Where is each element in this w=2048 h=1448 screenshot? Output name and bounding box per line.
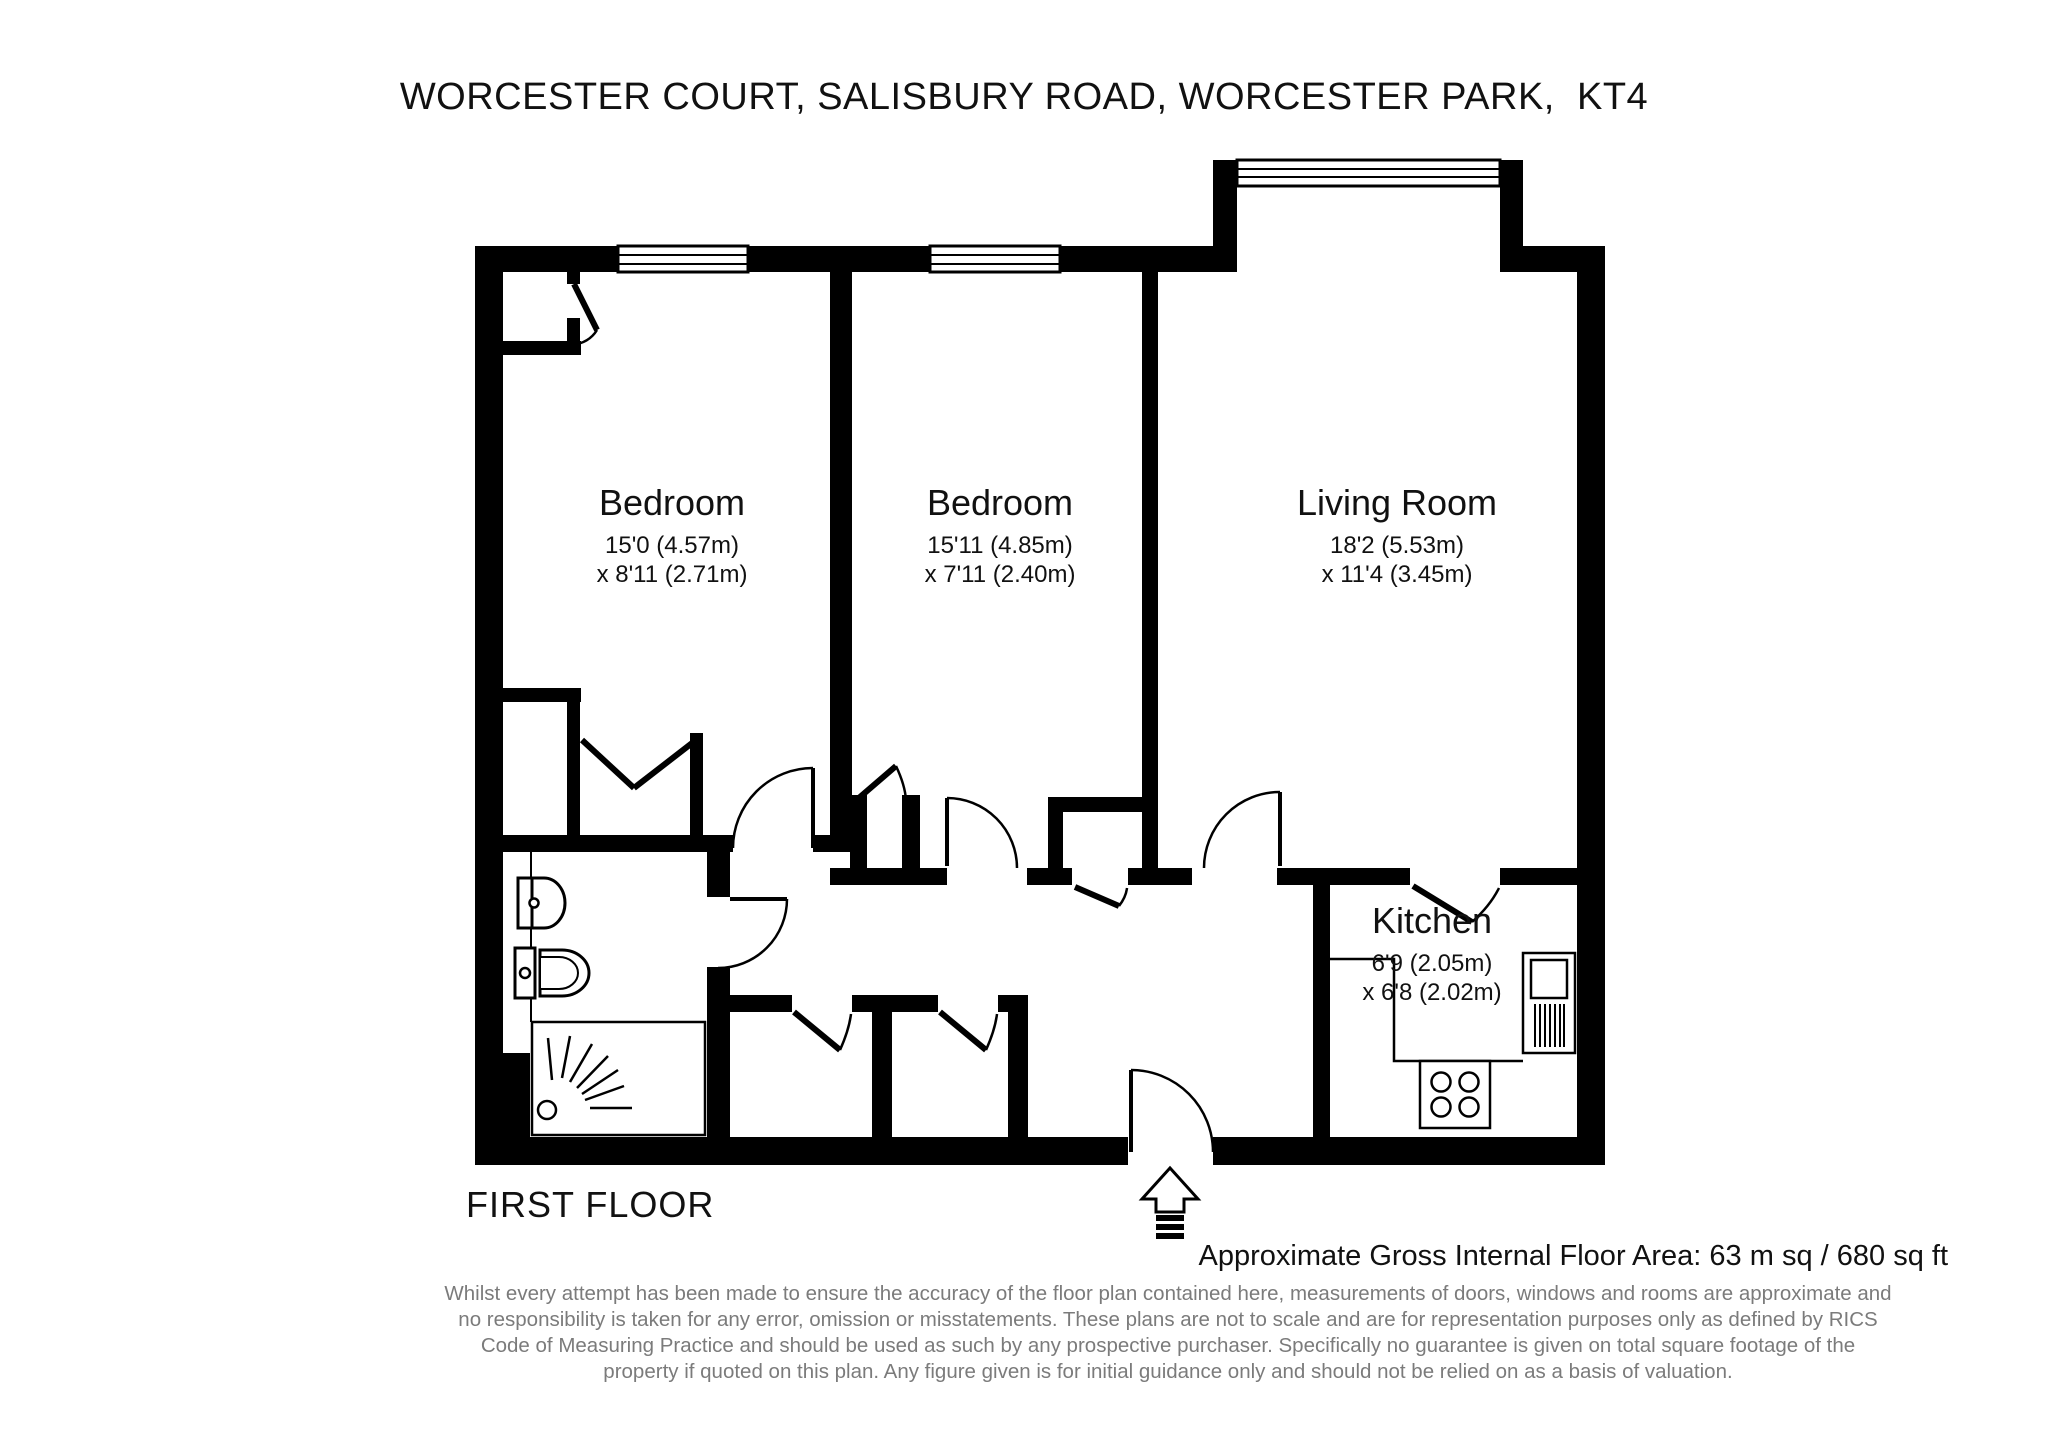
shower-icon	[532, 1022, 705, 1135]
room-label-living-room: Living Room 18'2 (5.53m) x 11'4 (3.45m)	[1297, 482, 1497, 589]
room-dimensions: 15'11 (4.85m)	[925, 531, 1076, 560]
room-dimensions: x 11'4 (3.45m)	[1297, 560, 1497, 589]
floor-plan	[0, 0, 2048, 1448]
bathroom-door	[718, 899, 787, 968]
bedroom1-wardrobe-doors	[582, 740, 696, 788]
room-dimensions: 18'2 (5.53m)	[1297, 531, 1497, 560]
bedroom2-closet-door	[853, 766, 906, 803]
bedroom1-door	[733, 768, 813, 848]
room-name: Kitchen	[1362, 900, 1501, 942]
floor-label: FIRST FLOOR	[466, 1184, 714, 1226]
outer-walls	[475, 160, 1605, 1165]
room-label-bedroom-2: Bedroom 15'11 (4.85m) x 7'11 (2.40m)	[925, 482, 1076, 589]
wash-basin-icon	[518, 878, 565, 928]
entrance-arrow-icon	[1142, 1168, 1198, 1239]
room-label-kitchen: Kitchen 6'9 (2.05m) x 6'8 (2.02m)	[1362, 900, 1501, 1007]
room-name: Bedroom	[597, 482, 748, 524]
page-title: WORCESTER COURT, SALISBURY ROAD, WORCEST…	[400, 76, 1648, 119]
room-name: Living Room	[1297, 482, 1497, 524]
hob-icon	[1420, 1061, 1490, 1128]
fridge-freezer-icon	[1523, 953, 1575, 1053]
room-dimensions: x 8'11 (2.71m)	[597, 560, 748, 589]
room-dimensions: 15'0 (4.57m)	[597, 531, 748, 560]
disclaimer-line: property if quoted on this plan. Any fig…	[444, 1359, 1891, 1385]
disclaimer-line: no responsibility is taken for any error…	[444, 1307, 1891, 1333]
hall-storage-door-right	[940, 1012, 997, 1050]
hall-cupboard-door	[1075, 887, 1127, 906]
entrance-door	[1131, 1070, 1213, 1152]
room-label-bedroom-1: Bedroom 15'0 (4.57m) x 8'11 (2.71m)	[597, 482, 748, 589]
bedroom2-door	[947, 798, 1017, 868]
living-room-window	[1237, 160, 1500, 186]
toilet-icon	[515, 948, 589, 998]
disclaimer: Whilst every attempt has been made to en…	[444, 1281, 1891, 1385]
floor-area-note: Approximate Gross Internal Floor Area: 6…	[1198, 1240, 1948, 1273]
interior-walls	[503, 272, 1582, 1137]
living-room-door	[1204, 792, 1280, 868]
room-dimensions: 6'9 (2.05m)	[1362, 949, 1501, 978]
room-dimensions: x 7'11 (2.40m)	[925, 560, 1076, 589]
disclaimer-line: Code of Measuring Practice and should be…	[444, 1333, 1891, 1359]
bedroom1-window	[618, 246, 748, 272]
bedroom2-window	[930, 246, 1060, 272]
disclaimer-line: Whilst every attempt has been made to en…	[444, 1281, 1891, 1307]
hall-storage-door-left	[794, 1012, 851, 1050]
room-dimensions: x 6'8 (2.02m)	[1362, 978, 1501, 1007]
bathroom-fixtures	[515, 852, 705, 1135]
room-name: Bedroom	[925, 482, 1076, 524]
